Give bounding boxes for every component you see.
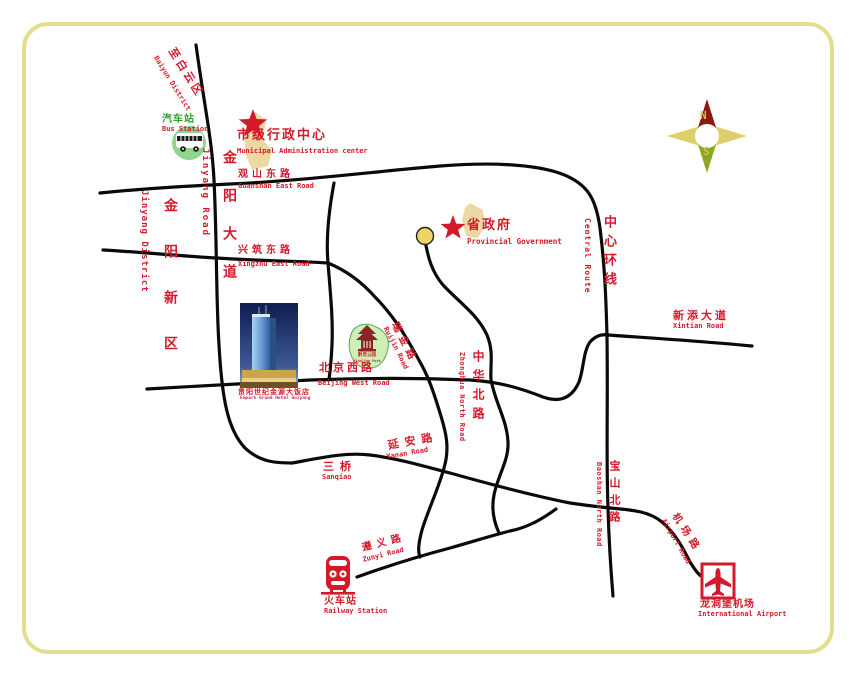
xintian-road-label-zh: 新添大道 <box>673 310 729 321</box>
provincial-star-icon <box>441 215 466 239</box>
compass-south-label: S <box>703 146 710 157</box>
xingzhu-road-label-en: Xingzhu East Road <box>238 261 310 268</box>
sanqiao-label-en: Sanqiao <box>322 474 352 481</box>
central-route-label-en: Central Route <box>583 218 591 294</box>
municipal-center-label-zh: 市级行政中心 <box>237 129 327 142</box>
provincial-government-label-en: Provincial Government <box>467 238 562 246</box>
municipal-center-label-en: Municipal Administration center <box>237 148 368 155</box>
zhonghua-road-label-zh: 中华北路 <box>472 350 484 426</box>
park-label-en: Qianling Park <box>353 360 381 364</box>
road-xintian-path <box>608 335 752 346</box>
road-ruijin-path <box>328 263 447 557</box>
jinyang-road-label-zh: 金阳大道 <box>222 150 236 302</box>
sanqiao-label-zh: 三桥 <box>323 461 357 472</box>
railway-station-label-en: Railway Station <box>324 608 387 615</box>
provincial-government-label-zh: 省政府 <box>467 219 512 232</box>
airport-icon <box>702 564 734 598</box>
compass-north-label: N <box>700 110 707 121</box>
baoshan-road-label-zh: 宝山北路 <box>609 460 620 528</box>
guanshan-road-label-zh: 观山东路 <box>238 170 294 180</box>
bus-station-label-en: Bus Station <box>162 126 208 133</box>
beijing-west-road-label-en: Beijing West Road <box>318 380 390 387</box>
road-park-path <box>327 183 334 380</box>
hotel-caption-en: Empark Grand Hotel Guiyang <box>240 397 310 402</box>
jinyang-district-label-zh: 金阳新区 <box>163 198 177 382</box>
bus-station-label-zh: 汽车站 <box>162 115 195 125</box>
airport-label-en: International Airport <box>698 611 787 618</box>
hotel-photo <box>240 303 298 388</box>
railway-station-icon <box>321 556 355 595</box>
xingzhu-road-label-zh: 兴筑东路 <box>238 246 294 256</box>
beijing-west-road-label-zh: 北京西路 <box>319 362 375 373</box>
guanshan-road-label-en: Guanshan East Road <box>238 183 314 190</box>
park-label-zh: 黔灵公园 <box>353 354 381 359</box>
hotel-caption-zh: 贵阳世纪金源大饭店 <box>238 389 310 396</box>
jinyang-road-label-en: Jinyang Road <box>200 148 209 237</box>
railway-station-label-zh: 火车站 <box>324 597 357 607</box>
zhonghua-road-label-en: Zhonghua North Road <box>458 352 465 442</box>
junction-node <box>417 228 434 245</box>
map-canvas: 至白云区 Baiyun District 汽车站 Bus Station 市级行… <box>0 0 856 676</box>
airport-label-zh: 龙洞堡机场 <box>700 600 755 610</box>
xintian-road-label-en: Xintian Road <box>673 323 724 330</box>
jinyang-district-label-en: Jinyang District <box>139 190 148 293</box>
map-graphics <box>0 0 856 676</box>
baoshan-road-label-en: Baoshan North Road <box>595 462 602 547</box>
compass-icon <box>667 99 747 173</box>
central-route-label-zh: 中心环线 <box>602 215 615 291</box>
